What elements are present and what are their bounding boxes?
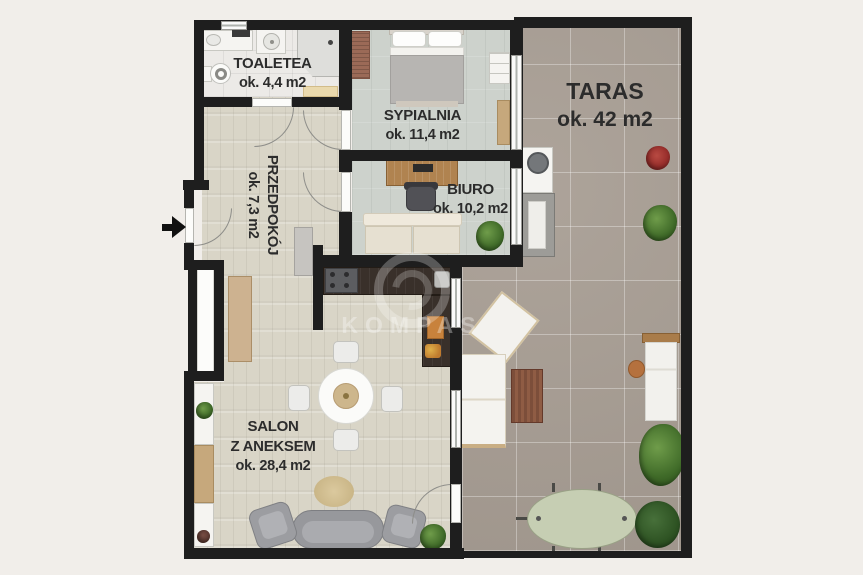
wall [194,97,252,107]
room-label-przedpokoj: PRZEDPOKÓJ ok. 7,3 m2 [230,140,296,270]
shelf-slot [232,30,250,37]
room-label-biuro: BIURO ok. 10,2 m2 [408,180,533,219]
hall-cabinet [294,227,313,276]
bed-duvet [390,55,464,104]
wall [184,548,464,559]
office-door [341,172,351,212]
bedroom-desk [497,100,510,145]
office-sofa-seat [365,226,412,254]
wardrobe-niche [197,268,214,372]
room-area: ok. 28,4 m2 [200,457,346,476]
bedroom-door [341,110,351,150]
bedroom-dresser [489,52,510,84]
room-name: PRZEDPOKÓJ [263,140,283,270]
wall [339,20,352,110]
dining-table-bowl [343,393,349,399]
table-leg [552,483,555,492]
room-name: SYPIALNIA [355,106,490,126]
wall [339,150,512,161]
room-name: BIURO [408,180,533,200]
washbasin-drain [270,40,274,44]
oval-garden-table [527,489,637,549]
room-label-salon: SALON Z ANEKSEM ok. 28,4 m2 [200,417,346,476]
terrace-door [451,484,461,523]
terrace-daybed [461,354,506,448]
room-label-sypialnia: SYPIALNIA ok. 11,4 m2 [355,106,490,145]
stove-burner [330,283,335,288]
room-area: ok. 10,2 m2 [408,200,533,219]
stove-burner [330,272,335,277]
window [451,390,461,448]
room-label-toaleta: TOALETEA ok. 4,4 m2 [205,54,340,93]
living-rug [314,476,354,507]
room-name: SALON [200,417,346,437]
wall [188,260,197,378]
room-area: ok. 11,4 m2 [355,126,490,145]
floor-plan: TOALETEA ok. 4,4 m2 SYPIALNIA ok. 11,4 m… [0,0,863,575]
terrace-bush-round [635,501,680,548]
stove-burner [344,272,349,277]
wall [458,551,692,558]
bathroom-sink-basin [206,34,221,46]
sun-lounger [645,342,677,421]
wall [214,268,224,380]
entry-door [185,208,194,243]
terrace-rug [511,369,543,423]
room-name: Z ANEKSEM [200,437,346,457]
entry-arrow-head [172,216,186,238]
terrace-stool [628,360,645,378]
room-area: ok. 7,3 m2 [244,140,263,270]
bed-pillow [392,31,426,47]
room-area: ok. 42 m2 [520,106,690,133]
wall [313,255,523,267]
wall [514,17,692,28]
dining-chair [288,385,310,411]
room-name: TOALETEA [205,54,340,74]
room-label-taras: TARAS ok. 42 m2 [520,76,690,133]
grill-lid [527,152,549,174]
wall [184,371,194,559]
dining-chair [381,386,403,412]
room-area: ok. 4,4 m2 [205,74,340,93]
bed-pillow [428,31,462,47]
desk-monitor [413,164,433,172]
hall-wardrobe [228,276,252,362]
stove-burner [344,283,349,288]
living-sofa-seat [302,521,374,543]
cutting-board [427,316,444,339]
wall [184,186,194,208]
office-sofa-seat [413,226,460,254]
window [221,21,247,30]
room-name: TARAS [520,76,690,106]
shower-drain [328,40,333,45]
kitchen-sink [434,271,450,288]
bathroom-door [252,98,292,107]
kitchen-items [425,344,441,358]
dining-chair [333,341,359,363]
wall [313,245,323,330]
window [451,278,461,328]
table-knob [536,516,541,521]
table-knob [622,516,627,521]
